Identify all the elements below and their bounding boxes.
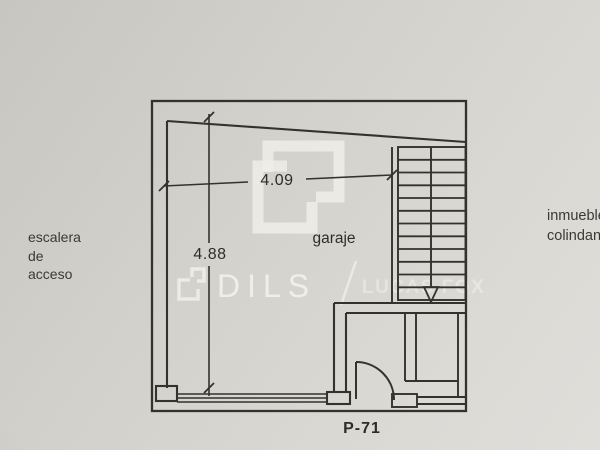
plan-linework bbox=[0, 0, 600, 450]
floor-plan-photo: DILS LUCAS FOX bbox=[0, 0, 600, 450]
dimension-width-label: 4.09 bbox=[260, 172, 293, 190]
annotation-line: escalera bbox=[28, 228, 81, 247]
staircase bbox=[392, 147, 466, 303]
annotation-line: acceso bbox=[28, 265, 81, 284]
room-label: garaje bbox=[312, 230, 355, 248]
garage-door-threshold bbox=[177, 394, 327, 402]
plan-number-label: P-71 bbox=[343, 420, 381, 438]
door-arc bbox=[356, 362, 394, 400]
annotation-line: de bbox=[28, 247, 81, 266]
annotation-line: colindante bbox=[547, 226, 600, 246]
annotation-inmueble: inmueble colindante bbox=[547, 206, 600, 246]
dimension-height-label: 4.88 bbox=[193, 246, 226, 264]
annotation-line: inmueble bbox=[547, 206, 600, 226]
annotation-escalera: escalera de acceso bbox=[28, 228, 81, 284]
vestibule-walls bbox=[392, 313, 466, 407]
door-swing bbox=[356, 362, 394, 400]
